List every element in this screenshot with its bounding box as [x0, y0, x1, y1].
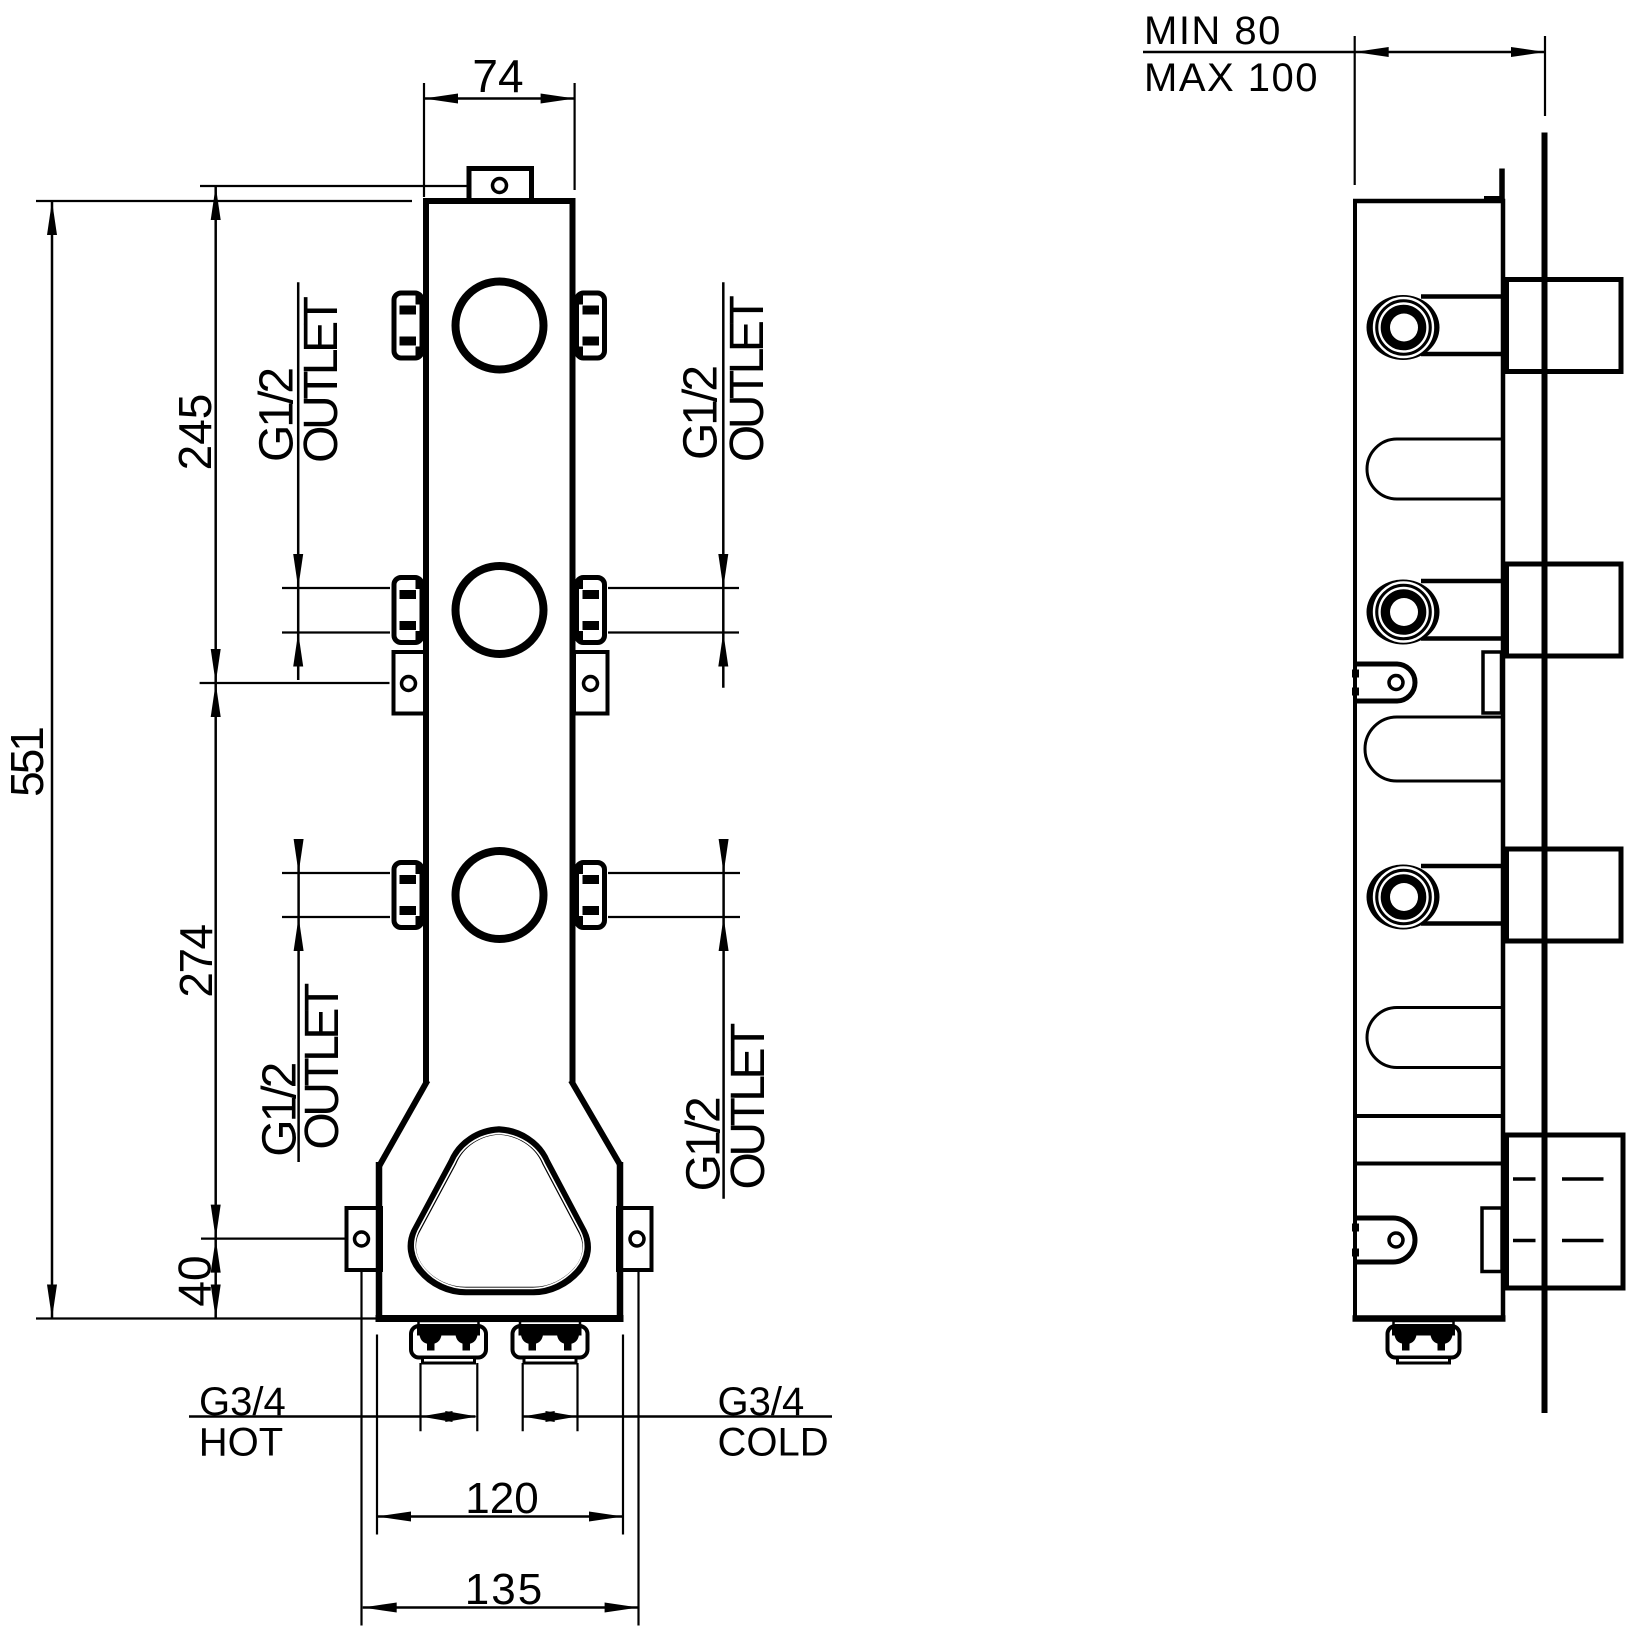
svg-text:G1/2: G1/2	[674, 367, 727, 460]
svg-text:551: 551	[1, 728, 53, 797]
svg-text:OUTLET: OUTLET	[722, 1023, 775, 1190]
svg-text:245: 245	[169, 394, 221, 471]
svg-text:OUTLET: OUTLET	[721, 296, 774, 463]
svg-text:274: 274	[170, 924, 222, 997]
svg-text:40: 40	[169, 1255, 221, 1306]
svg-text:MIN 80: MIN 80	[1144, 9, 1282, 53]
svg-text:COLD: COLD	[718, 1421, 829, 1465]
svg-text:74: 74	[472, 50, 523, 102]
svg-text:HOT: HOT	[199, 1421, 283, 1465]
svg-text:G3/4: G3/4	[718, 1380, 805, 1424]
svg-text:G3/4: G3/4	[199, 1380, 286, 1424]
svg-text:OUTLET: OUTLET	[295, 296, 348, 463]
svg-text:MAX 100: MAX 100	[1144, 56, 1319, 100]
svg-text:135: 135	[465, 1565, 544, 1614]
svg-text:120: 120	[465, 1474, 538, 1523]
svg-text:OUTLET: OUTLET	[296, 983, 349, 1150]
